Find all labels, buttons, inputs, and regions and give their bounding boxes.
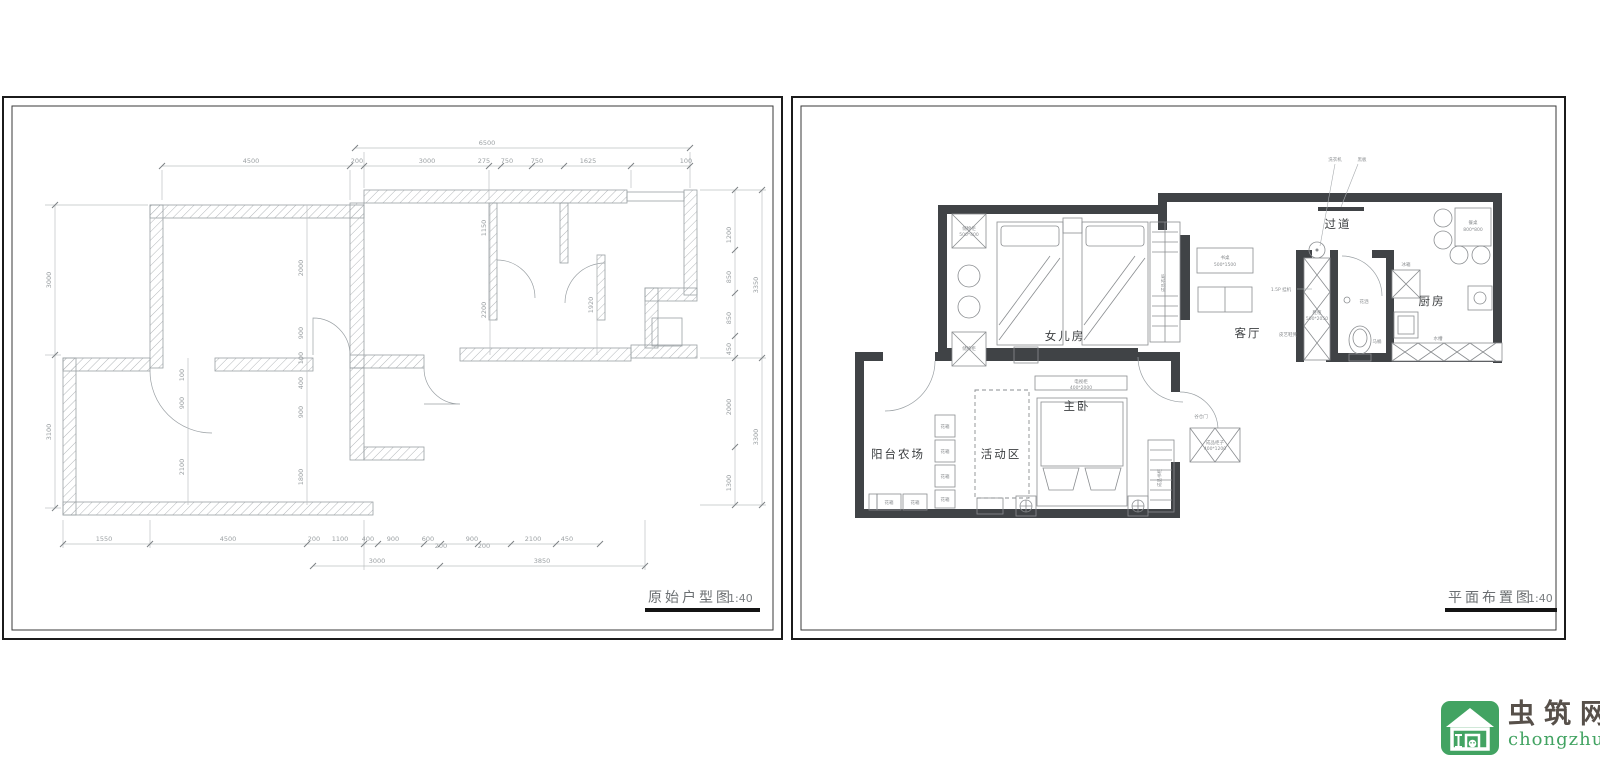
site-watermark: 虫筑网 chongzhu.cn [1441,701,1600,756]
kitchen-counter [1392,343,1502,361]
dim-label: 3000 [45,272,53,289]
page: 6500 4500 200 3000 275 750 750 1625 100 … [0,0,1600,761]
title-underline [1445,608,1557,612]
stool [1472,246,1490,264]
annotation-planter: 花箱 [941,448,950,455]
logo-site-url: chongzhu.cn [1508,731,1600,749]
dim-label: 1150 [480,220,488,237]
dim-label: 400 [362,535,374,543]
annotation-toilet: 马桶 [1373,338,1382,345]
left-plan-scale-text: 1:40 [728,592,753,605]
annotation-shoe-bench: 皮艺鞋凳 [1279,331,1297,338]
annotation-storage: 储物柜 [962,225,976,232]
daughter-room-furniture [952,214,1180,366]
shower-head-icon [1344,297,1350,303]
right-plan-title-text: 平面布置图 [1448,590,1533,606]
dim-label: 900 [297,327,305,339]
dim-label: 750 [501,157,513,165]
annotation-storage: 储物柜 [962,345,976,352]
dim-label: 1625 [580,157,597,165]
dim-label: 6500 [479,139,496,147]
annotation-sink: 水槽 [1434,335,1443,342]
master-bedroom-furniture [1016,376,1240,516]
dim-label: 100 [680,157,692,165]
dim-label: 1920 [587,297,595,314]
kitchen-furniture [1392,208,1502,361]
annotation-planter: 花箱 [911,499,920,506]
dim-label: 450 [561,535,573,543]
pillow [1085,468,1121,490]
right-plan-scale-text: 1:40 [1528,592,1553,605]
dim-label: 3000 [369,557,386,565]
dim-label: 600 [422,535,434,543]
annotation-desk: 书桌 [1221,254,1230,261]
corner-sink [1468,286,1492,310]
toilet [1349,326,1371,354]
logo-site-name: 虫筑网 [1508,701,1600,728]
annotation-barn-door: 谷仓门 [1194,413,1208,420]
dim-label: 2000 [725,399,733,416]
annotation-fridge: 冰箱 [1402,261,1411,268]
annotation-side-cabinet: 成品柜子 [1206,439,1224,446]
annotation-dining-table-size: 800*800 [1463,227,1483,233]
nightstand [1063,218,1082,233]
dim-label: 100 [297,352,305,364]
logo-house-icon [1441,701,1499,756]
annotation-storage-size: 500*400 [959,232,979,238]
title-underline [645,608,760,612]
annotation-tv-cabinet: 电视柜 [1074,378,1088,385]
stool [1434,231,1452,249]
dim-label: 850 [725,312,733,324]
room-label-daughter: 女儿房 [1045,329,1086,343]
dim-label: 1200 [725,227,733,244]
dim-label: 3300 [752,429,760,446]
dim-label: 275 [478,157,490,165]
annotation-planter: 花箱 [885,499,894,506]
planter-box [869,494,877,510]
annotation-ac: 1.5P 挂机 [1271,286,1292,293]
dim-label: 3000 [419,157,436,165]
dim-label: 200 [308,535,320,543]
dim-label: 900 [387,535,399,543]
dim-label: 400 [297,377,305,389]
dim-label: 200 [435,542,447,550]
annotation-shower: 花洒 [1360,298,1369,305]
dim-label: 200 [351,157,363,165]
annotation-planter: 花箱 [941,496,950,503]
dim-label: 750 [531,157,543,165]
dim-label: 1800 [297,469,305,486]
dim-label: 900 [178,397,186,409]
dim-label: 100 [178,369,186,381]
annotation-planter: 花箱 [941,473,950,480]
dim-label: 1550 [96,535,113,543]
dim-label: 2100 [525,535,542,543]
stool [1450,246,1468,264]
annotation-bookshelf: 成品书柜 [1156,469,1163,487]
annotation-planter: 花箱 [941,423,950,430]
left-plan-doors [150,260,605,433]
dim-label: 2100 [178,459,186,476]
left-plan-title-text: 原始户型图 [648,589,733,606]
stool [958,296,980,318]
stool [958,265,980,287]
annotation-shoe-cabinet: 鞋柜 [1313,309,1322,316]
right-plan-title: 平面布置图 1:40 [1445,590,1557,612]
living-room-furniture [1197,242,1330,360]
annotation-side-cabinet-size: 400*1200 [1204,446,1226,452]
activity-zone [975,390,1029,498]
logo-text-block: 虫筑网 chongzhu.cn [1508,701,1600,749]
dim-label: 4500 [243,157,260,165]
dim-label: 3850 [534,557,551,565]
room-label-master: 主卧 [1064,399,1091,413]
room-label-living: 客厅 [1235,326,1262,340]
bathroom-furniture [1344,297,1371,361]
dim-label: 200 [478,542,490,550]
stool [1434,209,1452,227]
dim-label: 900 [297,406,305,418]
dim-label: 900 [466,535,478,543]
annotation-tv-cabinet-size: 400*2000 [1070,385,1092,391]
dim-label: 3100 [45,424,53,441]
annotation-desk-size: 500*1500 [1214,262,1236,268]
dim-label: 2200 [480,302,488,319]
room-label-balcony: 阳台农场 [871,447,925,461]
left-plan-walls [63,190,697,515]
annotation-wardrobe: 成品衣柜 [1160,274,1167,292]
annotation-dining-table: 餐桌 [1469,219,1478,226]
room-label-kitchen: 厨房 [1419,294,1446,308]
annotation-blackboard: 黑板 [1358,156,1367,163]
blackboard [1318,207,1364,211]
dim-label: 1100 [332,535,349,543]
dim-label: 3350 [752,277,760,294]
dim-label: 1300 [725,475,733,492]
annotation-washer: 洗衣机 [1328,156,1342,163]
drawing-sheet: 6500 4500 200 3000 275 750 750 1625 100 … [0,0,1600,761]
dim-label: 4500 [220,535,237,543]
pillow [1043,468,1079,490]
annotation-shoe-cabinet-size: 500*2050 [1306,316,1328,322]
room-label-activity: 活动区 [981,447,1022,461]
dining-table [1455,208,1491,246]
dim-label: 2000 [297,260,305,277]
room-label-corridor: 过道 [1325,217,1352,231]
dim-label: 450 [725,343,733,355]
left-plan-title: 原始户型图 1:40 [645,589,760,612]
dim-label: 850 [725,271,733,283]
